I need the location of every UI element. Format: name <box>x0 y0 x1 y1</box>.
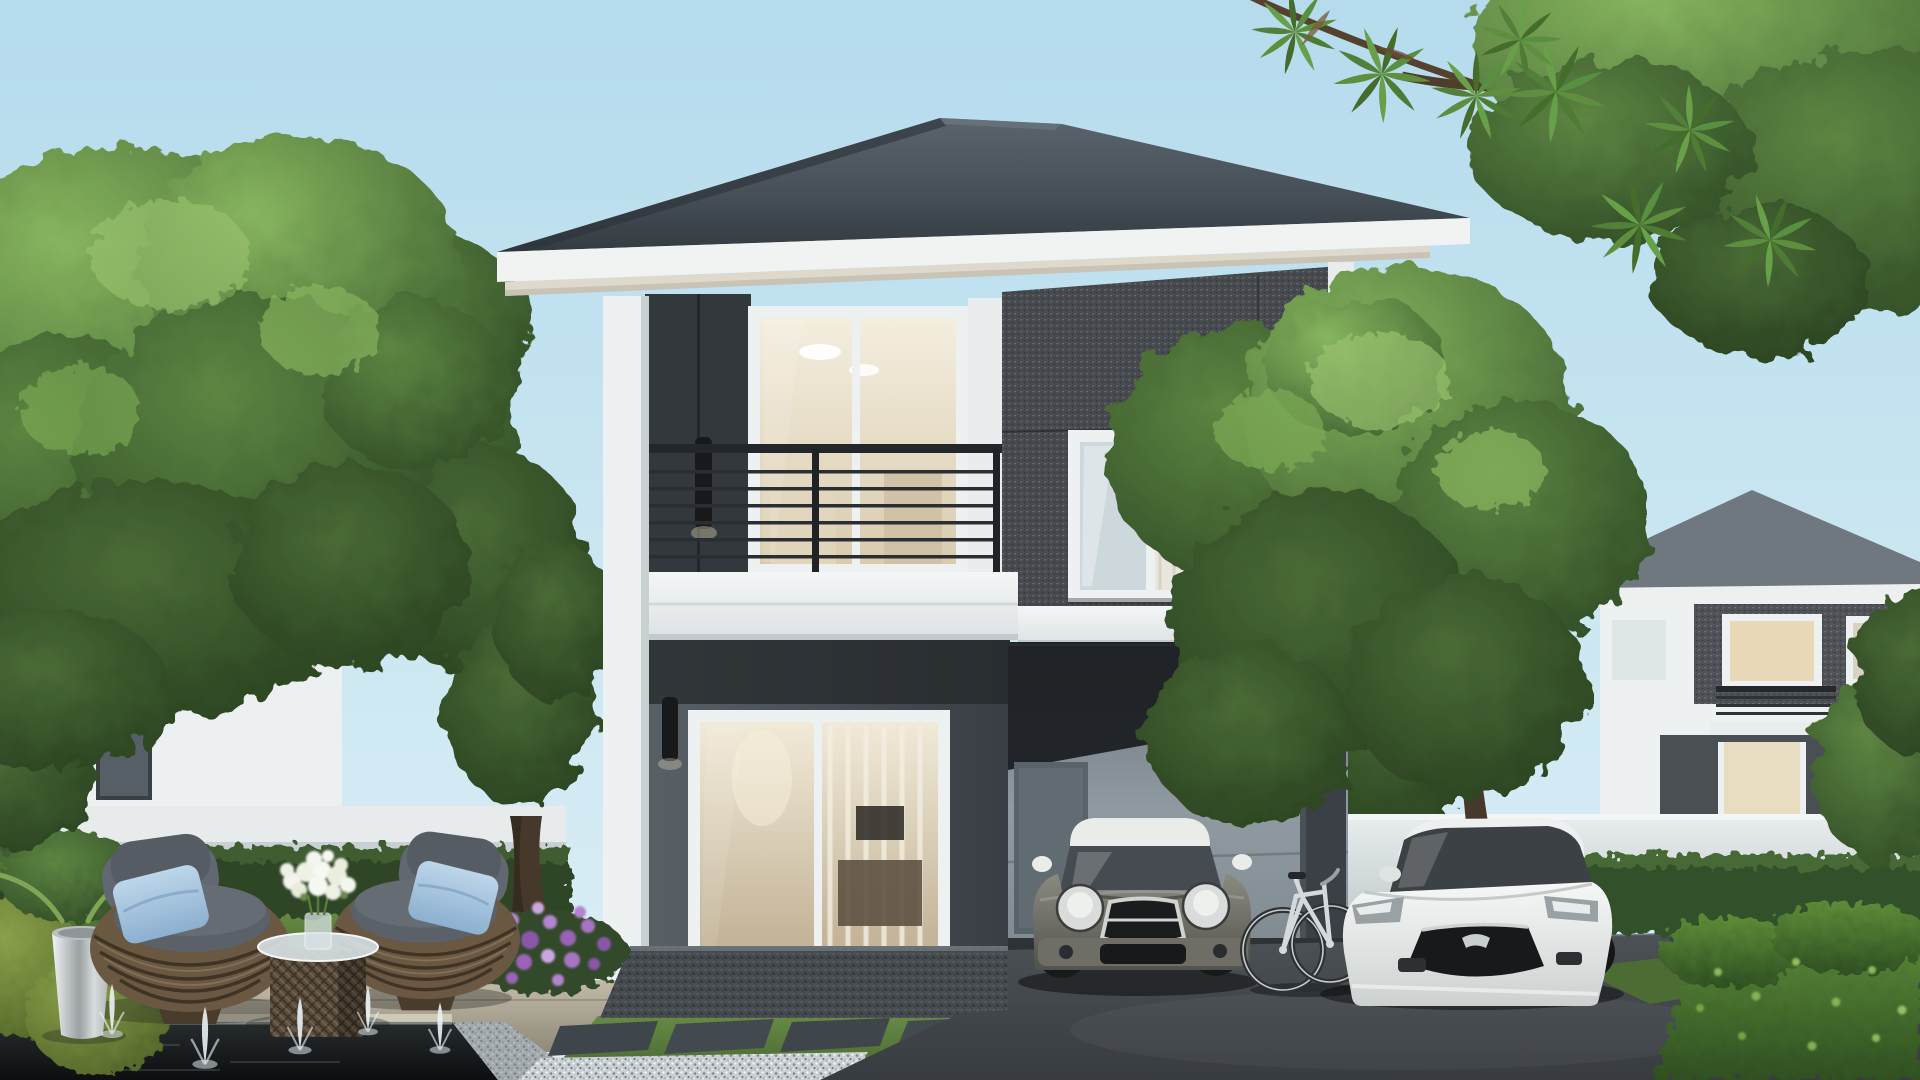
flower-vase <box>305 891 331 949</box>
corner-column <box>603 296 649 1002</box>
first-floor <box>649 640 1010 960</box>
render-canvas <box>0 0 1920 1080</box>
house-render-image <box>0 0 1920 1080</box>
lower-glass-door <box>688 710 950 960</box>
terrace-gravel <box>600 946 1010 1018</box>
hedge-right-bright <box>1652 902 1920 1080</box>
upper-glass-door <box>748 306 968 576</box>
